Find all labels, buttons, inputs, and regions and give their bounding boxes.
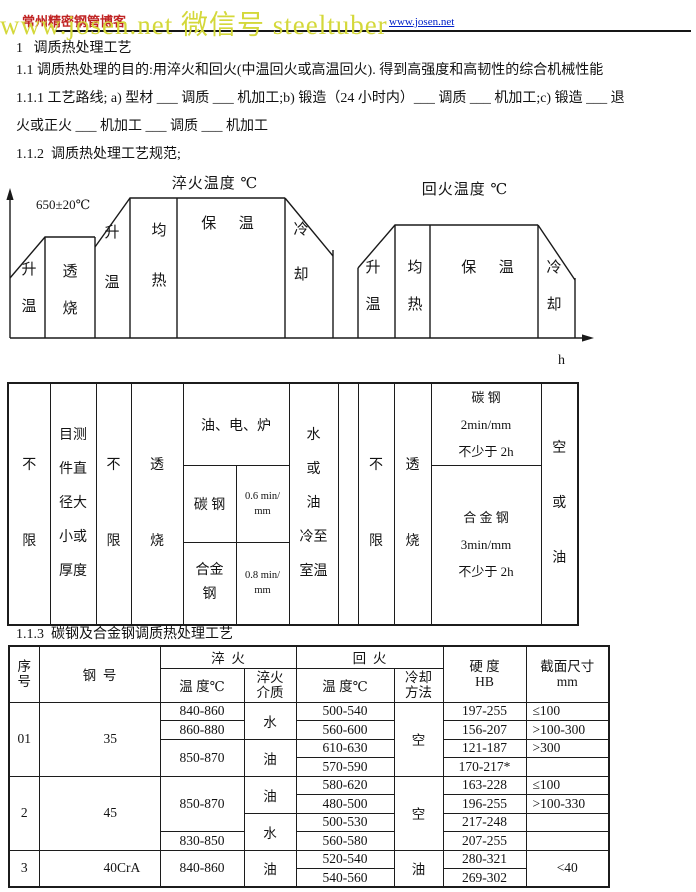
cell: >100-330: [526, 795, 609, 814]
quench-rise1-label: 升 温: [16, 252, 42, 326]
cell: 280-321: [443, 850, 526, 869]
cell: 197-255: [443, 702, 526, 721]
quench-title: 淬火温度 ℃: [150, 172, 280, 193]
cell: 850-870: [160, 739, 244, 776]
cell: 610-630: [296, 739, 394, 758]
cell: 油: [244, 776, 296, 813]
cell-grade: 45: [39, 776, 160, 850]
cell: 196-255: [443, 795, 526, 814]
cell: 水: [244, 813, 296, 850]
quench-hold-label: 保 温: [185, 212, 275, 233]
section-1-1-text: 1.1 调质热处理的目的:用淬火和回火(中温回火或高温回火). 得到高强度和高韧…: [16, 62, 603, 80]
cell: [526, 758, 609, 777]
cell: 156-207: [443, 721, 526, 740]
col-header-quench-medium: 淬火 介质: [244, 668, 296, 702]
cell: 830-850: [160, 832, 244, 851]
cell-seq: 3: [9, 850, 39, 887]
time-axis-label: h: [558, 353, 565, 369]
cell: ≤100: [526, 776, 609, 795]
cell: 水: [244, 702, 296, 739]
cell: 560-600: [296, 721, 394, 740]
table-row: 3 40CrA 840-860 油 520-540 油 280-321 <40: [9, 850, 609, 869]
temper-cool-label: 冷 却: [541, 250, 567, 324]
soak-temperature-label: 650±20℃: [36, 197, 90, 213]
cell: 860-880: [160, 721, 244, 740]
josen-link[interactable]: www.josen.net: [389, 16, 454, 28]
watermark-text: www.josen.net 微信号 steeltuber: [0, 3, 388, 42]
cell-temper-carbon: 碳 钢 2min/mm 不少于 2h: [431, 383, 541, 466]
cell-temper-alloy: 合 金 钢 3min/mm 不少于 2h: [431, 466, 541, 625]
document-page: 常州精密钢管博客 www.josen.net 微信号 steeltuber ww…: [0, 0, 696, 892]
cell: 560-580: [296, 832, 394, 851]
cell: [526, 832, 609, 851]
temper-rise-label: 升 温: [360, 250, 386, 324]
cell-temper-time: 不 限: [358, 383, 394, 625]
cell-soak: 透 烧: [131, 383, 183, 625]
cell-time: 不 限: [96, 383, 131, 625]
cell: 163-228: [443, 776, 526, 795]
cell: 480-500: [296, 795, 394, 814]
section-1-1-2-text: 1.1.2 调质热处理工艺规范;: [16, 146, 181, 164]
cell: 170-217*: [443, 758, 526, 777]
col-header-cool-method: 冷却 方法: [394, 668, 443, 702]
cell: >100-300: [526, 721, 609, 740]
col-header-temper: 回 火: [296, 646, 443, 668]
cell: 580-620: [296, 776, 394, 795]
cell: 207-255: [443, 832, 526, 851]
cell: 空: [394, 776, 443, 850]
section-1-1-1-line1: 1.1.1 工艺路线; a) 型材 ___ 调质 ___ 机加工;b) 锻造（2…: [16, 90, 625, 108]
cell: 540-560: [296, 869, 394, 888]
cell: 500-540: [296, 702, 394, 721]
cell: <40: [526, 850, 609, 887]
cell-alloy-rate: 0.8 min/ mm: [236, 543, 289, 625]
col-header-quench: 淬 火: [160, 646, 296, 668]
col-header-seq: 序 号: [9, 646, 39, 702]
cell: 油: [394, 850, 443, 887]
cell-quench-cooling: 水 或 油 冷至 室温: [289, 383, 338, 625]
process-table: 序 号 钢 号 淬 火 回 火 硬 度 HB 截面尺寸 mm 温 度℃ 淬火 介…: [8, 645, 610, 888]
cell-grade: 35: [39, 702, 160, 776]
heat-treatment-diagram: 淬火温度 ℃ 回火温度 ℃ 650±20℃ 升 温 透 烧 升 温 均 热 保 …: [0, 170, 640, 382]
cell: 850-870: [160, 776, 244, 832]
quench-cool-label: 冷 却: [288, 208, 314, 298]
cell: 840-860: [160, 850, 244, 887]
cell: ≤100: [526, 702, 609, 721]
cell: 520-540: [296, 850, 394, 869]
temper-hold-label: 保 温: [445, 256, 535, 277]
section-1-1-3-heading: 1.1.3 碳钢及合金钢调质热处理工艺: [16, 626, 233, 644]
cell: 570-590: [296, 758, 394, 777]
cell: 121-187: [443, 739, 526, 758]
cell-seq: 01: [9, 702, 39, 776]
cell: 油: [244, 739, 296, 776]
table-row: 2 45 850-870 油 580-620 空 163-228 ≤100: [9, 776, 609, 795]
cell: 油: [244, 850, 296, 887]
header-row: 序 号 钢 号 淬 火 回 火 硬 度 HB 截面尺寸 mm: [9, 646, 609, 668]
col-header-section: 截面尺寸 mm: [526, 646, 609, 702]
spec-table: 不 限 目测 件直 径大 小或 厚度 不 限 透 烧 油、电、炉 水 或 油 冷…: [7, 382, 579, 626]
table-row: 不 限 目测 件直 径大 小或 厚度 不 限 透 烧 油、电、炉 水 或 油 冷…: [8, 383, 578, 466]
col-header-quench-temp: 温 度℃: [160, 668, 244, 702]
cell: [526, 813, 609, 832]
section-1-1-1-line2: 火或正火 ___ 机加工 ___ 调质 ___ 机加工: [16, 118, 268, 136]
col-header-grade: 钢 号: [39, 646, 160, 702]
cell: 217-248: [443, 813, 526, 832]
cell: >300: [526, 739, 609, 758]
cell-load: 不 限: [8, 383, 50, 625]
temper-equalize-label: 均 热: [402, 250, 428, 324]
cell-alloy-label: 合金 钢: [183, 543, 236, 625]
cell-temper-cooling: 空 或 油: [541, 383, 578, 625]
cell-equipment: 油、电、炉: [183, 383, 289, 466]
table-row: 01 35 840-860 水 500-540 空 197-255 ≤100: [9, 702, 609, 721]
cell-carbon-label: 碳 钢: [183, 466, 236, 543]
col-header-hardness: 硬 度 HB: [443, 646, 526, 702]
cell: 269-302: [443, 869, 526, 888]
cell-temper-soak: 透 烧: [394, 383, 431, 625]
empty-cell: [338, 383, 358, 625]
temper-title: 回火温度 ℃: [400, 178, 530, 199]
quench-soak-label: 透 烧: [57, 254, 83, 328]
cell: 500-530: [296, 813, 394, 832]
cell: 840-860: [160, 702, 244, 721]
cell: 空: [394, 702, 443, 776]
section-1-heading: 1 调质热处理工艺: [16, 40, 132, 58]
quench-rise2-label: 升 温: [99, 208, 125, 308]
col-header-temper-temp: 温 度℃: [296, 668, 394, 702]
cell-grade: 40CrA: [39, 850, 160, 887]
cell-carbon-rate: 0.6 min/ mm: [236, 466, 289, 543]
quench-equalize-label: 均 热: [146, 206, 172, 306]
cell-seq: 2: [9, 776, 39, 850]
cell-size: 目测 件直 径大 小或 厚度: [50, 383, 96, 625]
